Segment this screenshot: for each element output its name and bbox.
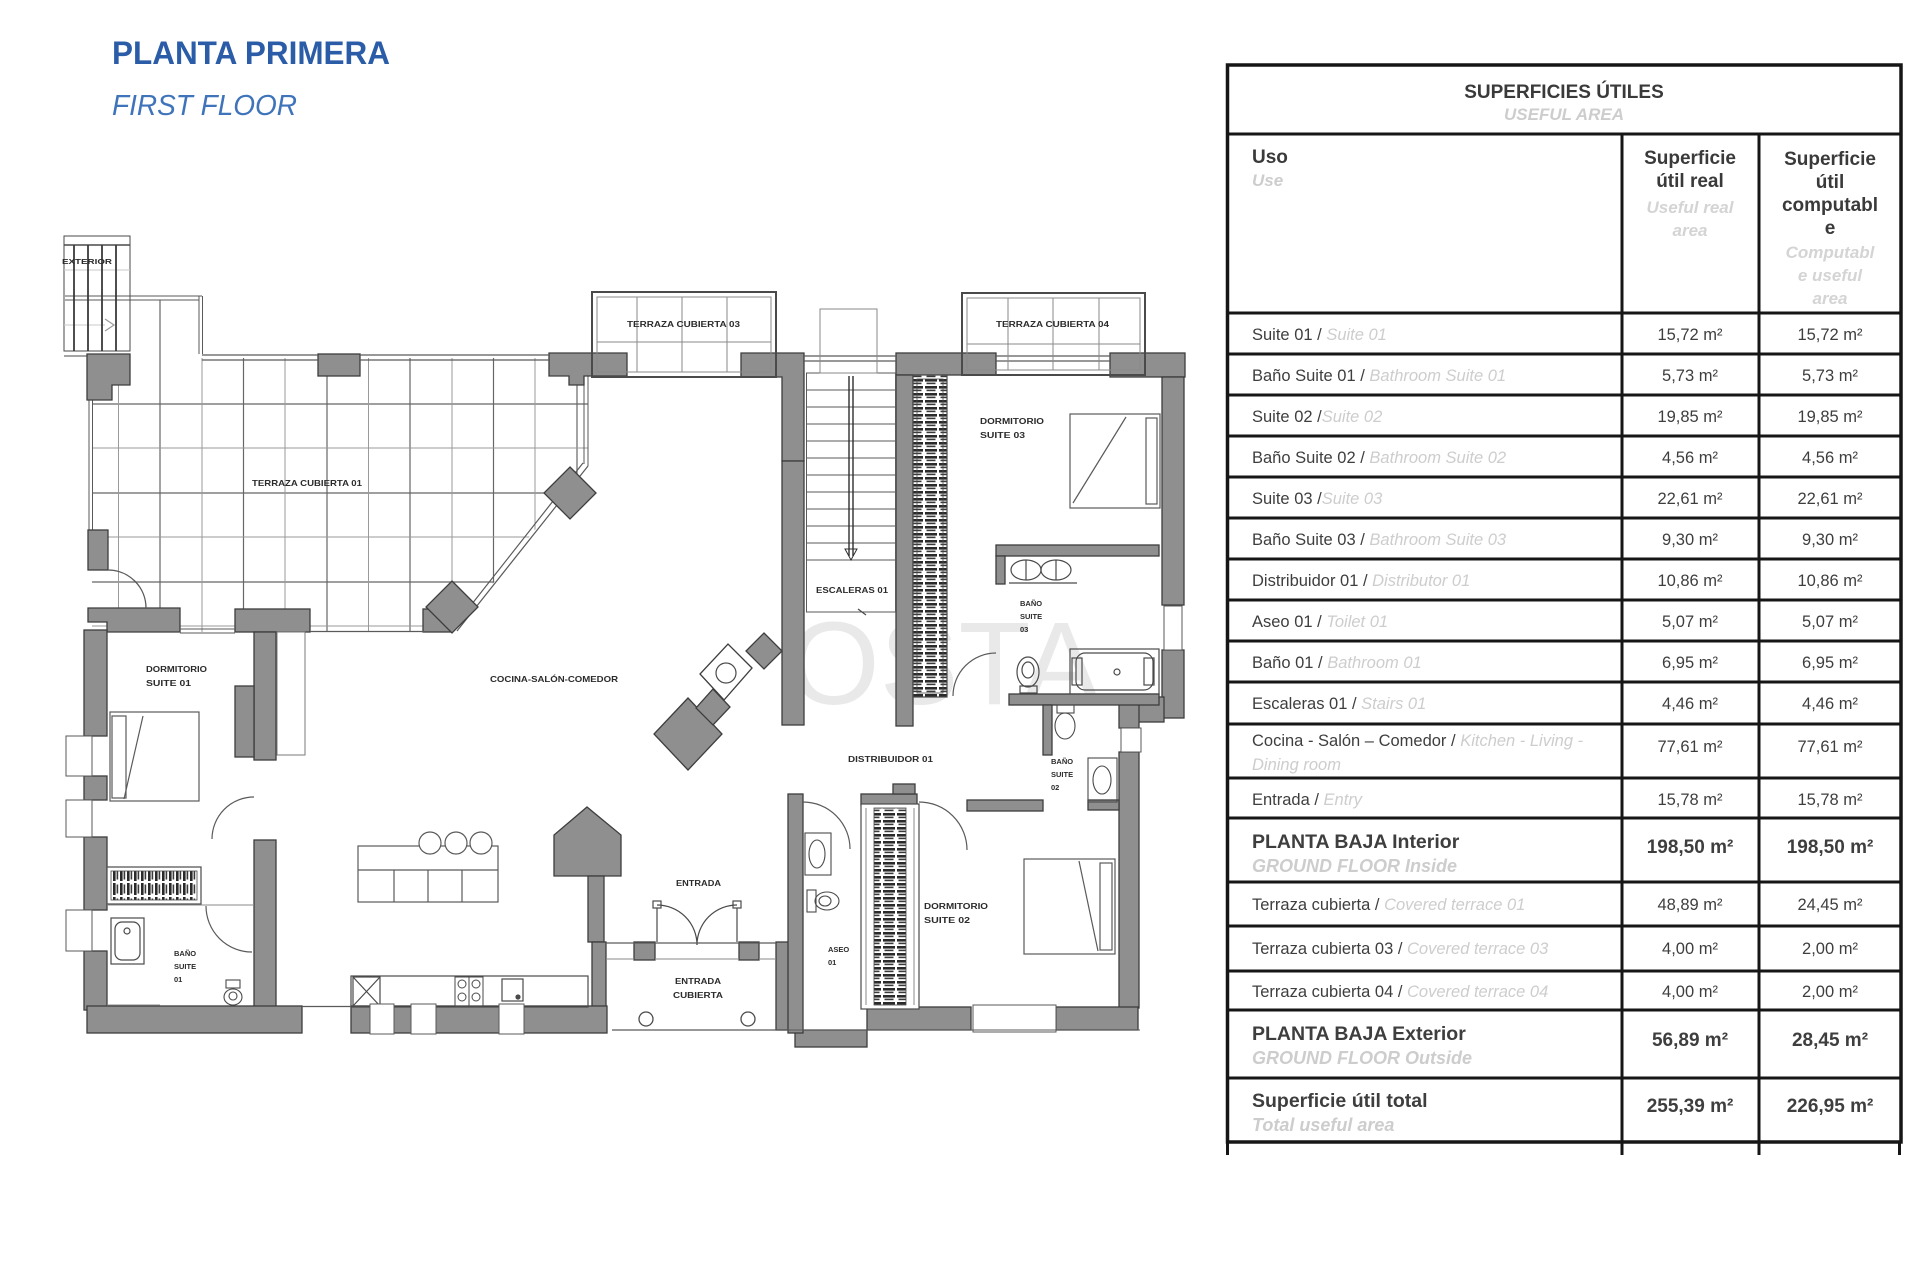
svg-text:4,00 m²: 4,00 m²: [1662, 983, 1718, 1001]
svg-text:22,61 m²: 22,61 m²: [1797, 490, 1863, 508]
svg-text:19,85 m²: 19,85 m²: [1797, 408, 1863, 426]
svg-text:EXTERIOR: EXTERIOR: [62, 257, 113, 266]
svg-text:SUITE: SUITE: [1051, 770, 1073, 779]
svg-text:ENTRADA: ENTRADA: [675, 977, 721, 986]
svg-text:DORMITORIO: DORMITORIO: [980, 417, 1044, 426]
svg-text:15,72 m²: 15,72 m²: [1657, 326, 1723, 344]
svg-text:ENTRADA: ENTRADA: [676, 879, 721, 888]
svg-text:BAÑO: BAÑO: [1051, 757, 1073, 766]
svg-text:24,45 m²: 24,45 m²: [1797, 896, 1863, 914]
svg-text:48,89 m²: 48,89 m²: [1657, 896, 1723, 914]
svg-text:77,61 m²: 77,61 m²: [1657, 738, 1723, 756]
svg-text:5,07 m²: 5,07 m²: [1662, 613, 1718, 631]
svg-text:Aseo 01 / Toilet 01: Aseo 01 / Toilet 01: [1252, 613, 1388, 631]
svg-text:e: e: [1825, 218, 1836, 239]
svg-text:GROUND FLOOR Outside: GROUND FLOOR Outside: [1252, 1048, 1472, 1068]
svg-text:Uso: Uso: [1252, 147, 1288, 168]
svg-text:GROUND FLOOR Inside: GROUND FLOOR Inside: [1252, 856, 1457, 876]
svg-text:9,30 m²: 9,30 m²: [1802, 531, 1858, 549]
svg-text:BAÑO: BAÑO: [1020, 599, 1042, 608]
svg-text:SUITE 02: SUITE 02: [924, 916, 971, 925]
svg-text:area: area: [1673, 221, 1708, 240]
svg-text:DISTRIBUIDOR 01: DISTRIBUIDOR 01: [848, 755, 934, 764]
svg-text:BAÑO: BAÑO: [174, 949, 196, 958]
svg-text:Distribuidor 01 / Distributor: Distribuidor 01 / Distributor 01: [1252, 572, 1470, 590]
svg-text:6,95 m²: 6,95 m²: [1802, 654, 1858, 672]
svg-text:Cocina - Salón – Comedor / Kit: Cocina - Salón – Comedor / Kitchen - Liv…: [1252, 732, 1584, 750]
svg-text:SUITE 01: SUITE 01: [146, 679, 192, 688]
svg-text:Baño Suite 01 / Bathroom Suite: Baño Suite 01 / Bathroom Suite 01: [1252, 367, 1506, 385]
svg-text:15,78 m²: 15,78 m²: [1797, 791, 1863, 809]
svg-text:Computabl: Computabl: [1786, 243, 1876, 262]
svg-text:Entrada / Entry: Entrada / Entry: [1252, 791, 1364, 809]
svg-text:area: area: [1813, 289, 1848, 308]
svg-text:5,07 m²: 5,07 m²: [1802, 613, 1858, 631]
svg-text:FIRST FLOOR: FIRST FLOOR: [112, 90, 297, 122]
svg-text:Suite 03 /Suite 03: Suite 03 /Suite 03: [1252, 490, 1383, 508]
svg-text:6,95 m²: 6,95 m²: [1662, 654, 1718, 672]
svg-text:DORMITORIO: DORMITORIO: [146, 665, 207, 674]
svg-text:Superficie: Superficie: [1644, 148, 1736, 169]
svg-text:77,61 m²: 77,61 m²: [1797, 738, 1863, 756]
svg-text:SUPERFICIES ÚTILES: SUPERFICIES ÚTILES: [1464, 81, 1664, 103]
svg-text:56,89 m²: 56,89 m²: [1652, 1030, 1728, 1051]
svg-text:255,39 m²: 255,39 m²: [1647, 1096, 1734, 1117]
svg-text:TERRAZA CUBIERTA 04: TERRAZA CUBIERTA 04: [996, 320, 1110, 329]
svg-text:Suite 02 /Suite 02: Suite 02 /Suite 02: [1252, 408, 1382, 426]
svg-text:SUITE: SUITE: [174, 962, 196, 971]
svg-text:Use: Use: [1252, 171, 1283, 190]
svg-text:4,46 m²: 4,46 m²: [1802, 695, 1858, 713]
svg-text:02: 02: [1051, 783, 1059, 792]
svg-text:Useful real: Useful real: [1647, 198, 1735, 217]
svg-text:CUBIERTA: CUBIERTA: [673, 991, 723, 1000]
svg-text:computabl: computabl: [1782, 195, 1878, 216]
svg-text:4,00 m²: 4,00 m²: [1662, 940, 1718, 958]
svg-text:4,56 m²: 4,56 m²: [1662, 449, 1718, 467]
svg-text:19,85 m²: 19,85 m²: [1657, 408, 1723, 426]
svg-text:10,86 m²: 10,86 m²: [1657, 572, 1723, 590]
svg-text:Terraza cubierta / Covered ter: Terraza cubierta / Covered terrace 01: [1252, 896, 1525, 914]
svg-text:Baño 01 / Bathroom 01: Baño 01 / Bathroom 01: [1252, 654, 1422, 672]
svg-text:PLANTA PRIMERA: PLANTA PRIMERA: [112, 35, 390, 71]
svg-text:Dining room: Dining room: [1252, 756, 1341, 774]
svg-text:Suite 01 / Suite 01: Suite 01 / Suite 01: [1252, 326, 1387, 344]
svg-text:SUITE: SUITE: [1020, 612, 1042, 621]
svg-text:Terraza cubierta 04 / Covered: Terraza cubierta 04 / Covered terrace 04: [1252, 983, 1548, 1001]
svg-text:226,95 m²: 226,95 m²: [1787, 1096, 1874, 1117]
svg-text:01: 01: [828, 958, 836, 967]
svg-text:Escaleras 01 / Stairs 01: Escaleras 01 / Stairs 01: [1252, 695, 1426, 713]
svg-text:e useful: e useful: [1798, 266, 1864, 285]
svg-text:ASEO: ASEO: [828, 945, 849, 954]
svg-text:28,45 m²: 28,45 m²: [1792, 1030, 1868, 1051]
svg-text:5,73 m²: 5,73 m²: [1802, 367, 1858, 385]
svg-text:útil: útil: [1816, 172, 1845, 193]
svg-text:4,46 m²: 4,46 m²: [1662, 695, 1718, 713]
svg-text:15,72 m²: 15,72 m²: [1797, 326, 1863, 344]
svg-text:SUITE 03: SUITE 03: [980, 431, 1026, 440]
svg-text:10,86 m²: 10,86 m²: [1797, 572, 1863, 590]
svg-text:USEFUL AREA: USEFUL AREA: [1504, 105, 1624, 124]
svg-text:15,78 m²: 15,78 m²: [1657, 791, 1723, 809]
svg-text:Superficie: Superficie: [1784, 149, 1876, 170]
svg-text:Total useful area: Total useful area: [1252, 1115, 1394, 1135]
svg-text:útil real: útil real: [1656, 171, 1724, 192]
svg-text:DORMITORIO: DORMITORIO: [924, 902, 988, 911]
svg-text:2,00 m²: 2,00 m²: [1802, 940, 1858, 958]
svg-text:TERRAZA CUBIERTA 03: TERRAZA CUBIERTA 03: [627, 320, 741, 329]
svg-text:COCINA-SALÓN-COMEDOR: COCINA-SALÓN-COMEDOR: [490, 673, 618, 684]
svg-text:03: 03: [1020, 625, 1028, 634]
svg-text:Superficie útil total: Superficie útil total: [1252, 1090, 1428, 1112]
svg-text:PLANTA BAJA Exterior: PLANTA BAJA Exterior: [1252, 1023, 1466, 1045]
svg-text:198,50 m²: 198,50 m²: [1647, 837, 1734, 858]
svg-text:5,73 m²: 5,73 m²: [1662, 367, 1718, 385]
svg-text:Baño Suite 03 / Bathroom Suite: Baño Suite 03 / Bathroom Suite 03: [1252, 531, 1507, 549]
svg-text:Baño Suite 02 / Bathroom Suite: Baño Suite 02 / Bathroom Suite 02: [1252, 449, 1506, 467]
svg-text:TERRAZA CUBIERTA 01: TERRAZA CUBIERTA 01: [252, 478, 362, 488]
svg-text:ESCALERAS 01: ESCALERAS 01: [816, 586, 889, 595]
svg-text:01: 01: [174, 975, 182, 984]
svg-text:198,50 m²: 198,50 m²: [1787, 837, 1874, 858]
svg-text:Terraza cubierta 03 / Covered: Terraza cubierta 03 / Covered terrace 03: [1252, 940, 1549, 958]
svg-text:2,00 m²: 2,00 m²: [1802, 983, 1858, 1001]
svg-text:22,61 m²: 22,61 m²: [1657, 490, 1723, 508]
svg-text:9,30 m²: 9,30 m²: [1662, 531, 1718, 549]
svg-text:4,56 m²: 4,56 m²: [1802, 449, 1858, 467]
svg-text:PLANTA BAJA Interior: PLANTA BAJA Interior: [1252, 831, 1460, 853]
